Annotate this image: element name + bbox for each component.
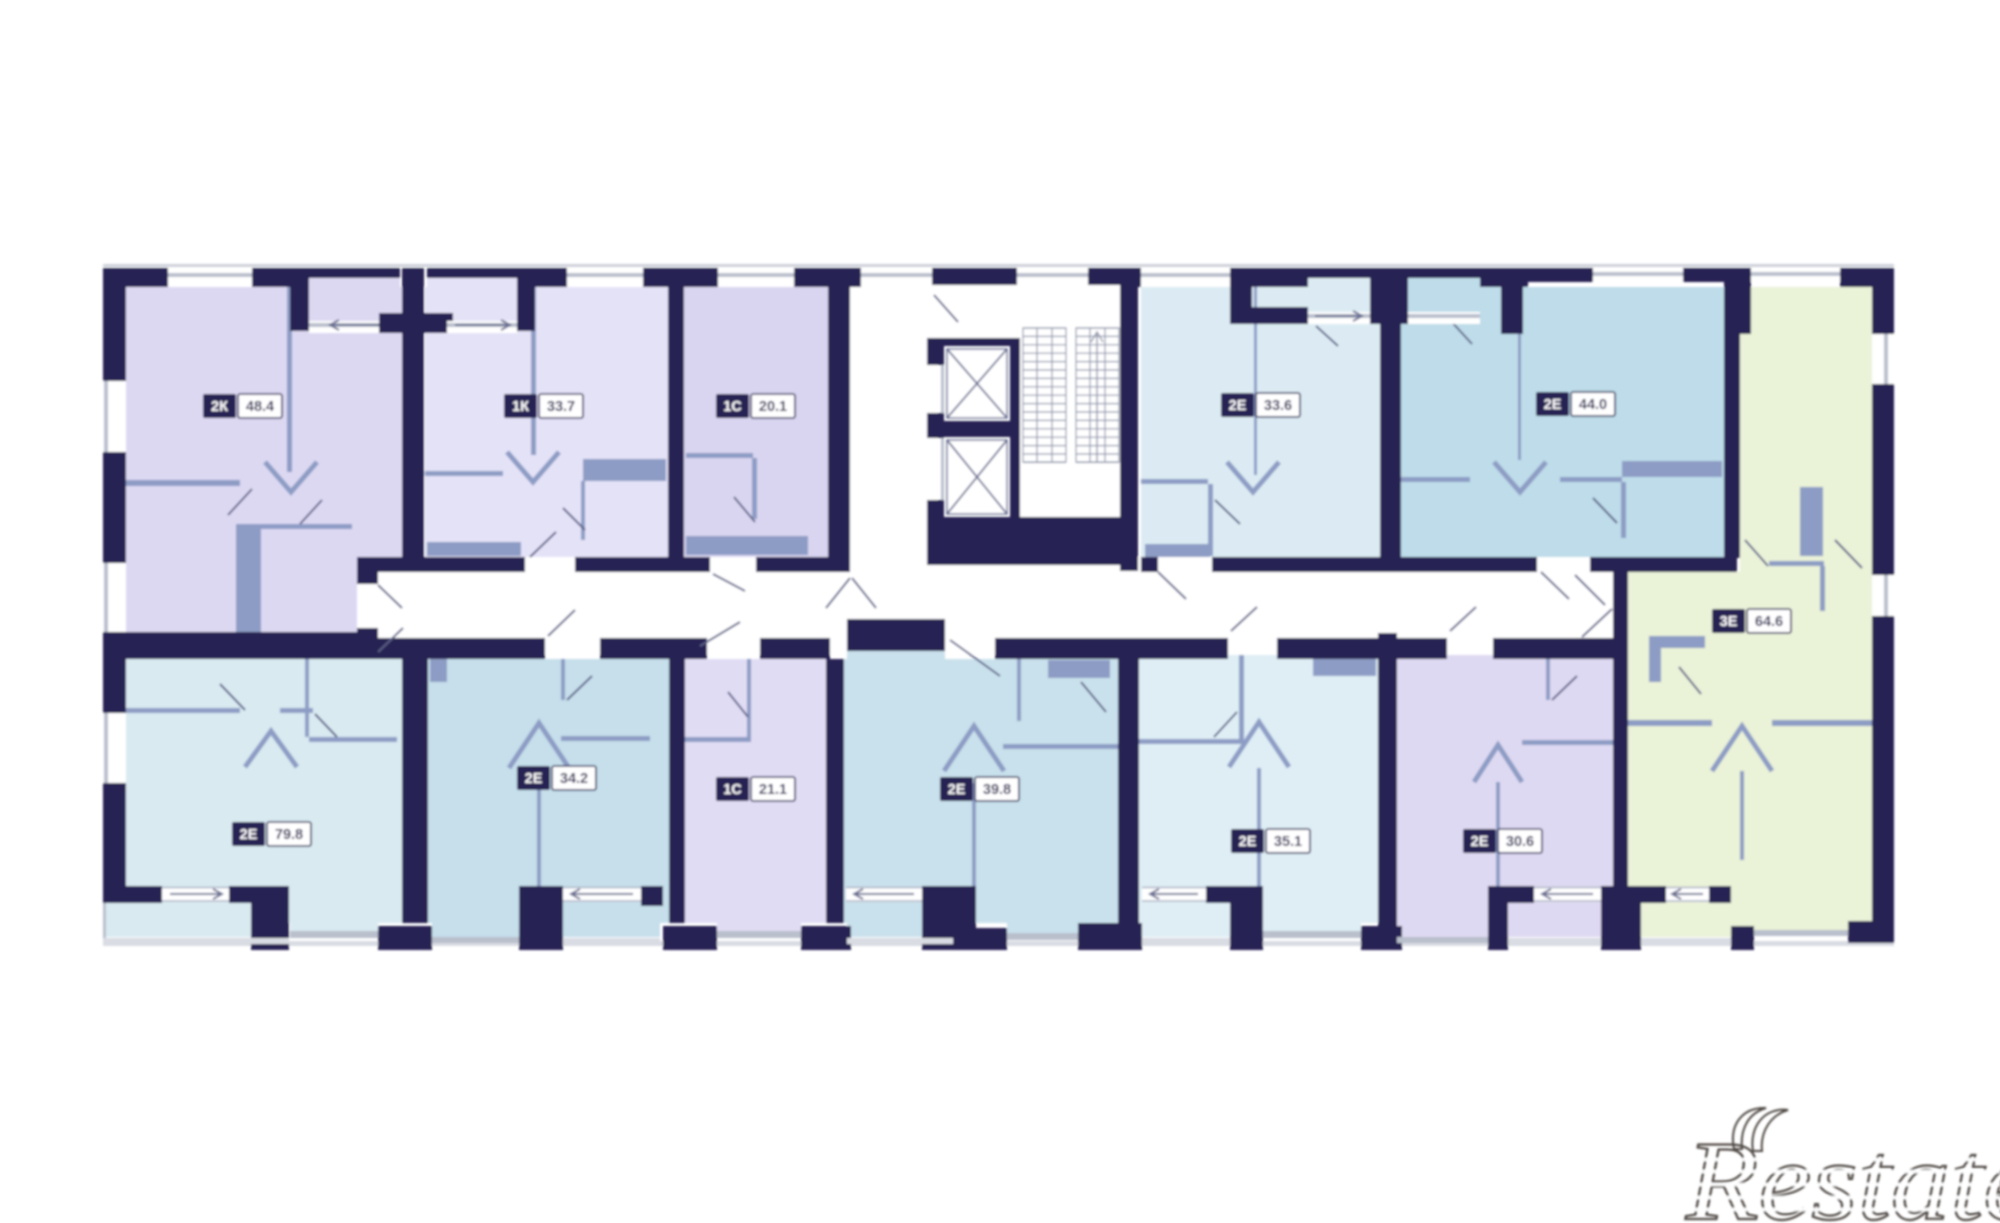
- svg-text:2Е: 2Е: [1239, 834, 1257, 850]
- svg-text:64.6: 64.6: [1755, 614, 1783, 630]
- svg-text:1С: 1С: [723, 782, 742, 798]
- svg-text:1С: 1С: [723, 399, 742, 415]
- svg-text:33.7: 33.7: [547, 399, 575, 415]
- svg-text:79.8: 79.8: [275, 827, 303, 843]
- svg-text:2Е: 2Е: [1229, 398, 1247, 414]
- svg-text:2Е: 2Е: [1544, 397, 1562, 413]
- svg-text:1К: 1К: [512, 399, 529, 415]
- svg-text:33.6: 33.6: [1264, 398, 1292, 414]
- svg-text:3Е: 3Е: [1720, 614, 1738, 630]
- svg-text:34.2: 34.2: [560, 771, 588, 787]
- svg-text:30.6: 30.6: [1506, 834, 1534, 850]
- svg-text:39.8: 39.8: [983, 782, 1011, 798]
- svg-text:48.4: 48.4: [246, 399, 274, 415]
- svg-text:2Е: 2Е: [948, 782, 966, 798]
- svg-text:2Е: 2Е: [525, 771, 543, 787]
- svg-text:20.1: 20.1: [759, 399, 787, 415]
- svg-text:2Е: 2Е: [240, 827, 258, 843]
- svg-text:35.1: 35.1: [1274, 834, 1302, 850]
- svg-text:44.0: 44.0: [1579, 397, 1607, 413]
- svg-text:2К: 2К: [211, 399, 228, 415]
- svg-text:21.1: 21.1: [759, 782, 787, 798]
- svg-text:2Е: 2Е: [1471, 834, 1489, 850]
